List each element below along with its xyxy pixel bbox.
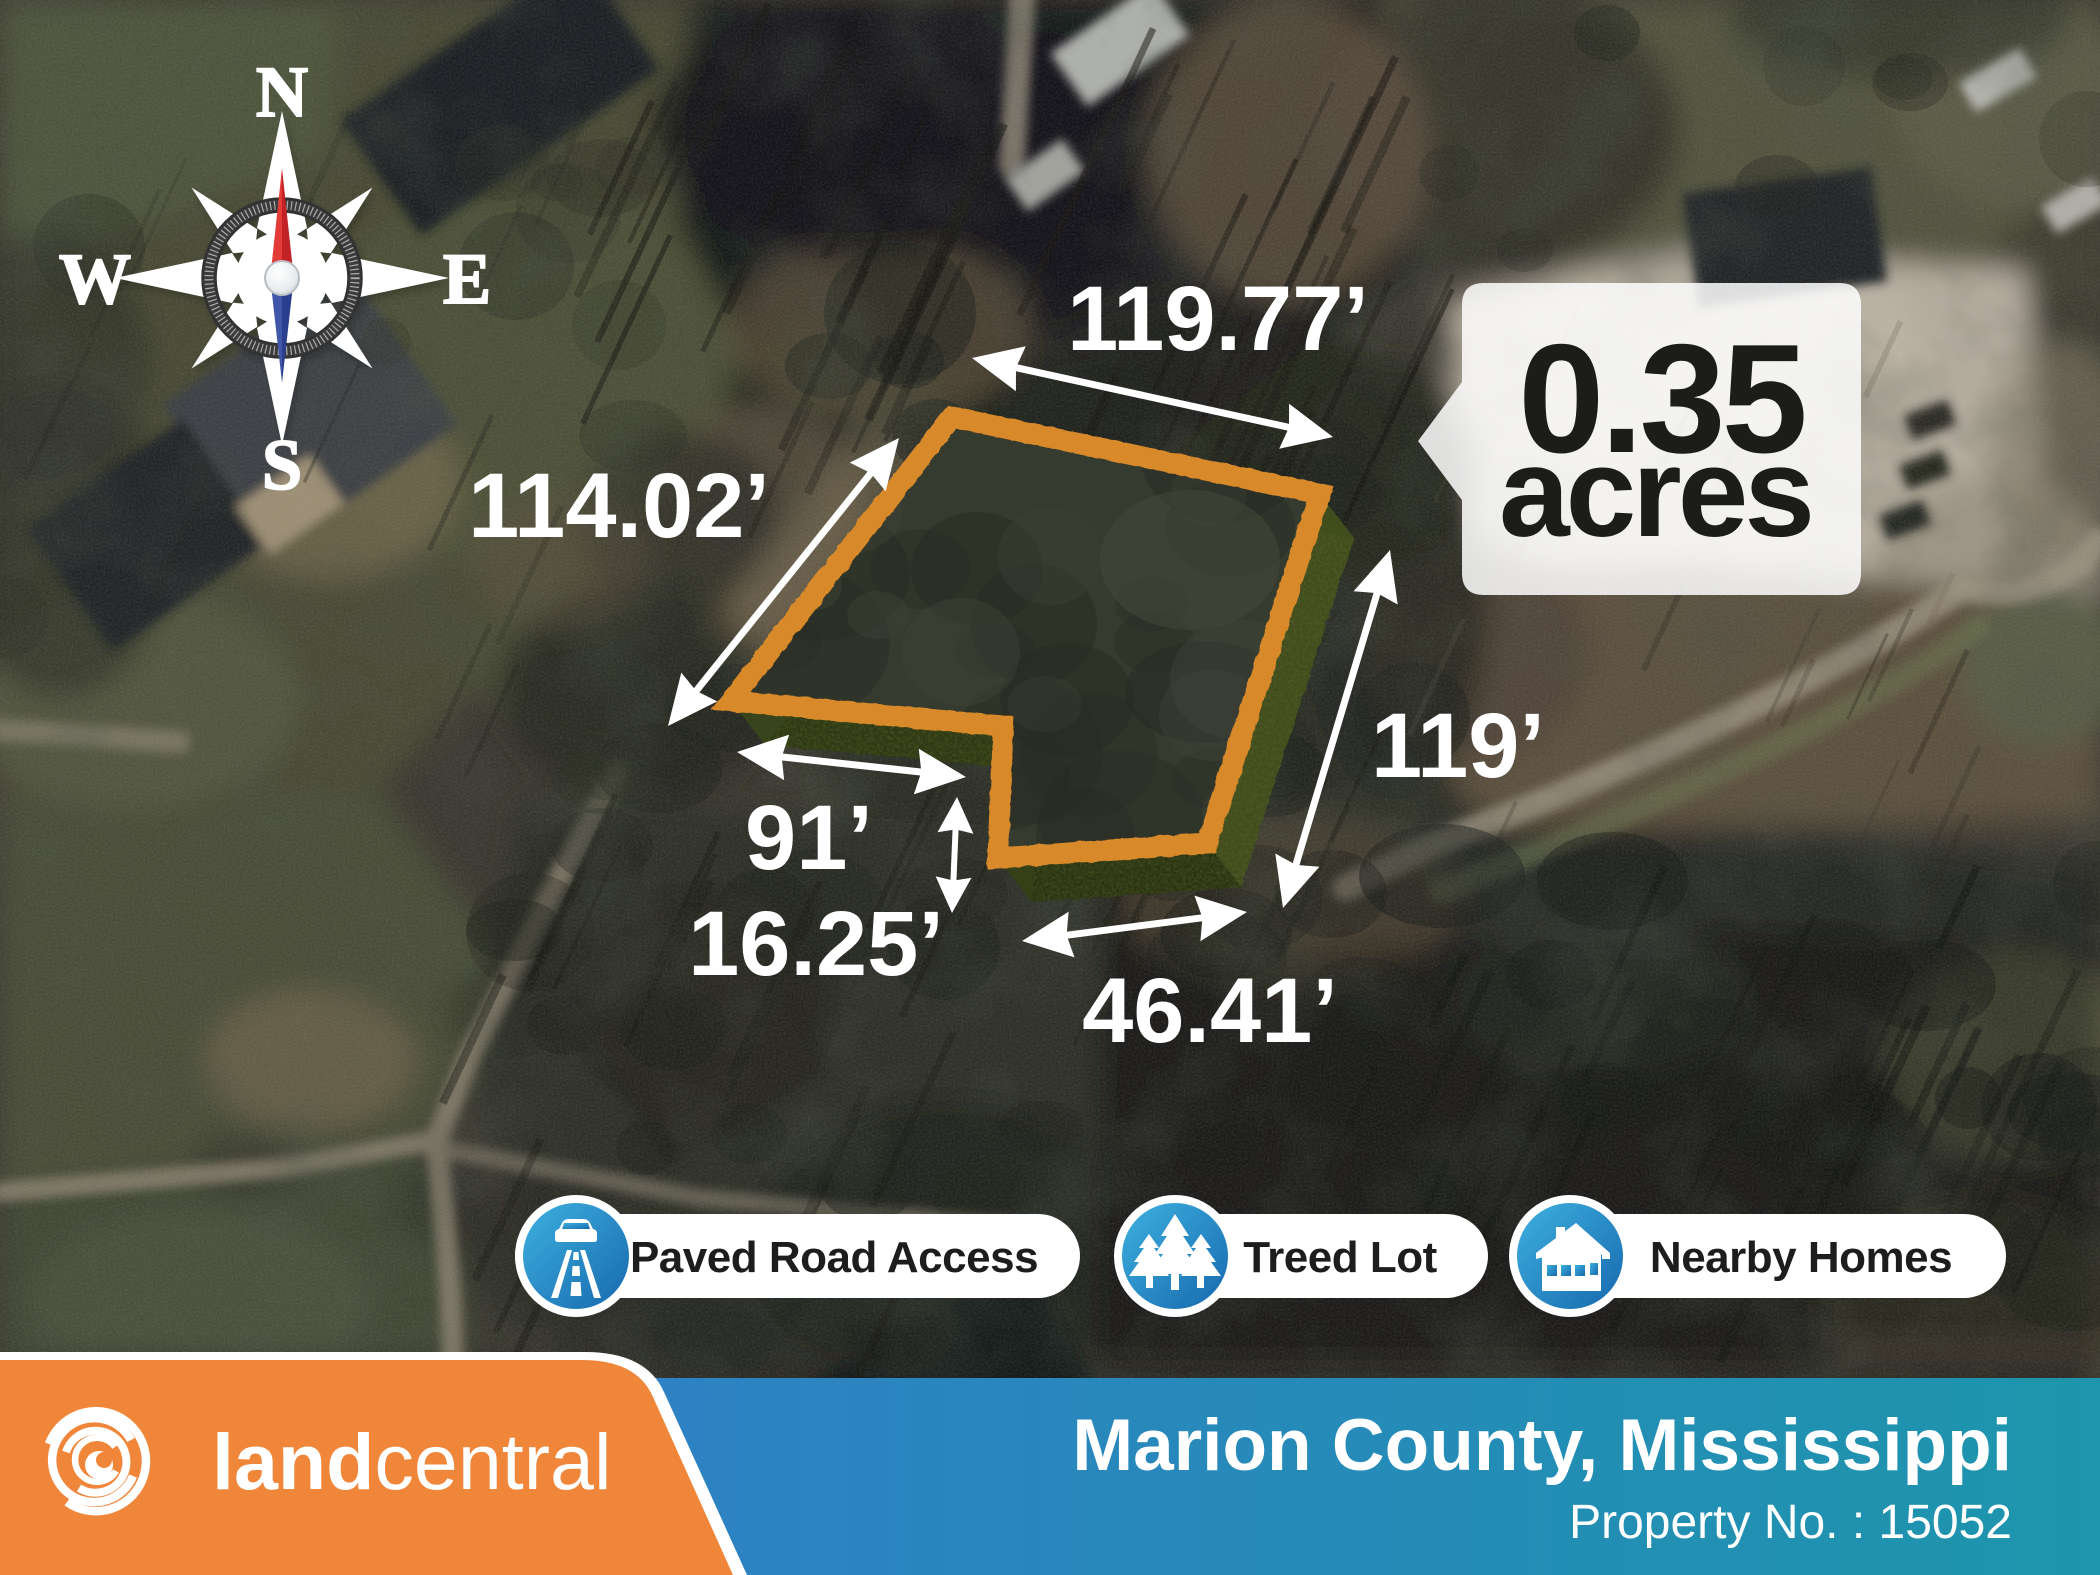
svg-text:landcentral: landcentral [212,1417,612,1506]
svg-text:W: W [59,239,131,319]
svg-text:114.02’: 114.02’ [468,455,770,557]
svg-text:N: N [256,52,308,132]
svg-text:Property No. : 15052: Property No. : 15052 [1569,1496,2012,1549]
svg-text:119’: 119’ [1371,695,1545,797]
svg-text:16.25’: 16.25’ [688,893,944,995]
svg-text:Marion County, Mississippi: Marion County, Mississippi [1072,1405,2012,1486]
svg-text:acres: acres [1499,421,1811,563]
svg-text:Treed Lot: Treed Lot [1243,1233,1437,1282]
svg-text:Nearby Homes: Nearby Homes [1650,1233,1952,1282]
svg-text:91’: 91’ [745,787,873,889]
svg-text:S: S [262,425,302,505]
svg-text:46.41’: 46.41’ [1082,960,1338,1062]
svg-text:Paved Road Access: Paved Road Access [630,1233,1038,1282]
svg-text:E: E [443,239,491,319]
svg-text:119.77’: 119.77’ [1067,268,1369,370]
